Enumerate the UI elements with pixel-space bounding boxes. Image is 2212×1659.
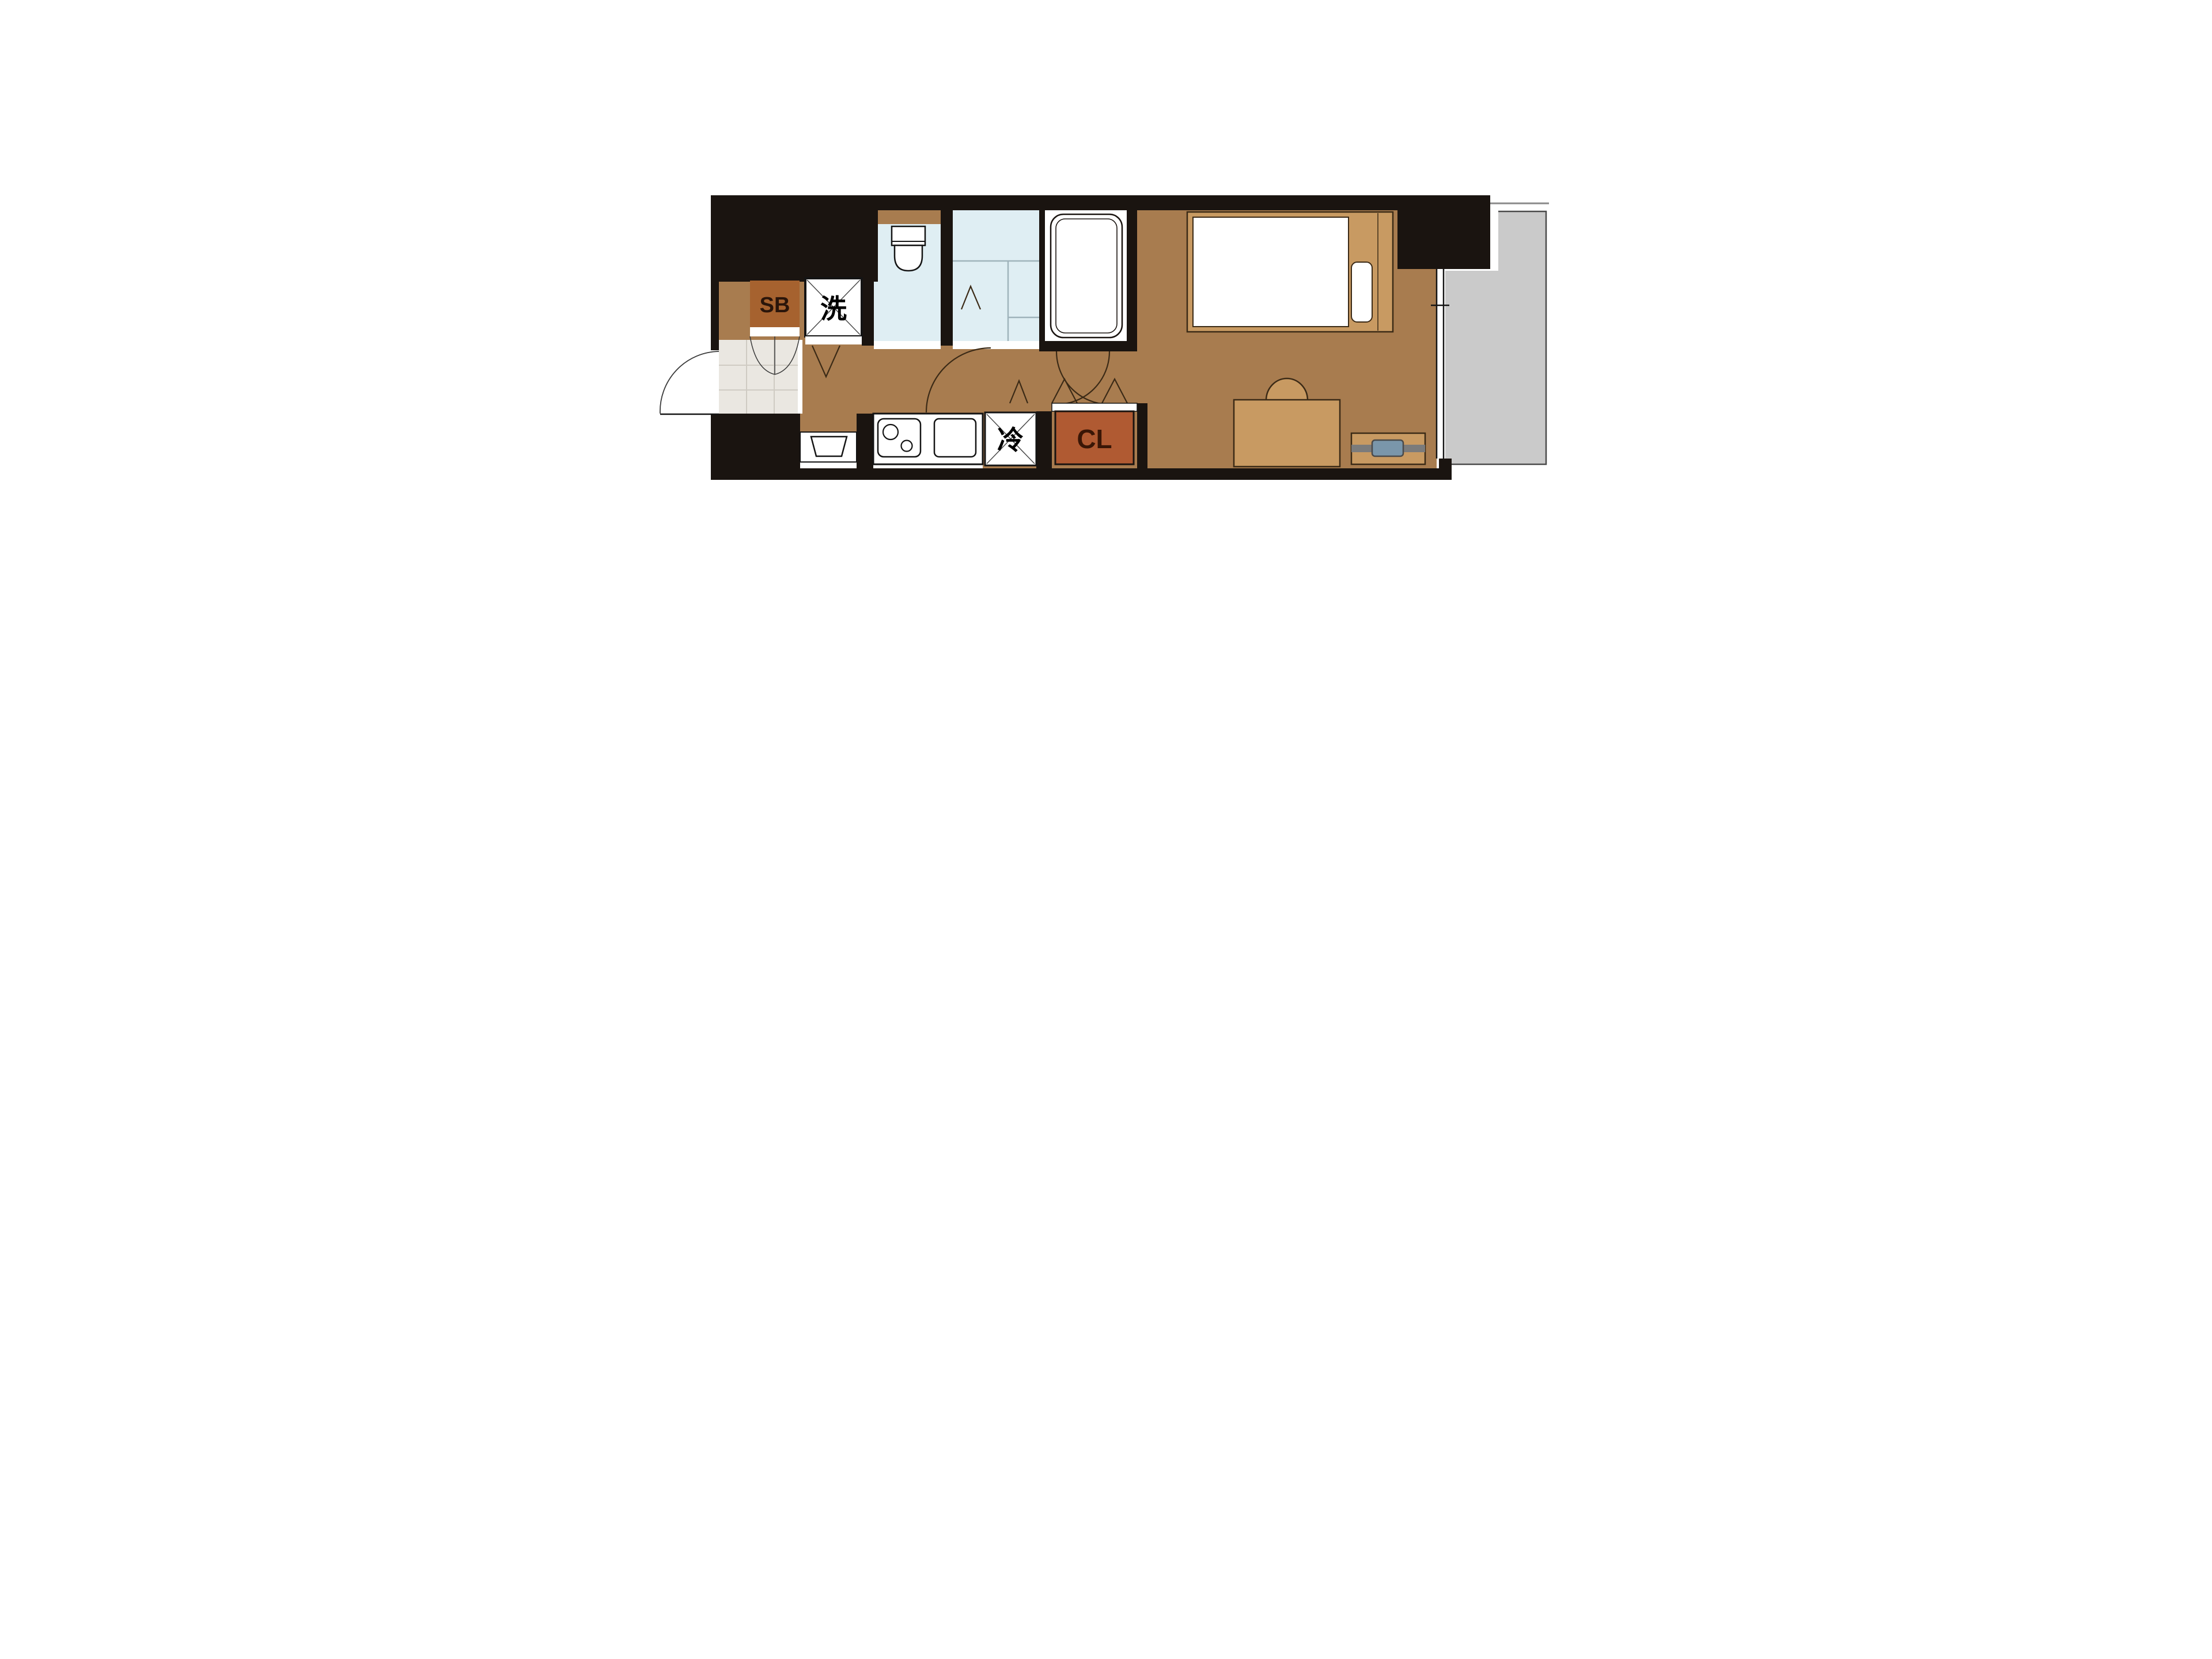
desk (1234, 400, 1340, 467)
entrance-door-swing-arc (660, 351, 719, 414)
wall-washer-toilet (862, 210, 874, 346)
wall-closet-right (1137, 403, 1147, 468)
toilet-bowl (895, 245, 922, 271)
pillow (1351, 262, 1372, 322)
wash-basin-base (800, 462, 857, 468)
wash-basin (811, 437, 847, 456)
tv (1372, 440, 1403, 456)
washer-threshold (805, 336, 862, 344)
shoe-box-label: SB (760, 293, 790, 317)
bed (1187, 212, 1393, 332)
toilet-door-threshold (874, 341, 941, 349)
two-burner-stove (878, 419, 921, 457)
wall-fridge-right (1036, 411, 1052, 468)
wall-bath-bottom (1039, 341, 1137, 351)
wall-toilet-washroom (941, 210, 953, 346)
entrance-door (660, 351, 719, 414)
toilet (892, 226, 925, 271)
wall-bath-right (1127, 210, 1137, 341)
shoe-box: SB (750, 281, 800, 374)
wall-left-upper (711, 210, 719, 350)
kitchen-sink (934, 419, 976, 457)
washroom-floor (953, 210, 1039, 341)
wall-washroom-bath (1039, 210, 1045, 341)
tv-board (1351, 433, 1425, 464)
floor-plan-drawing: SB 洗 CL (654, 0, 1558, 677)
wall-kitchen-left-stub (857, 414, 873, 468)
washroom-door-threshold (953, 341, 1039, 349)
entrance-step (798, 340, 802, 414)
mattress (1193, 217, 1349, 327)
wall-top (711, 195, 1490, 210)
washer-label: 洗 (820, 294, 847, 324)
closet-door-track (1052, 403, 1137, 411)
bathtub (1051, 214, 1122, 338)
window-glass (1437, 269, 1444, 459)
wall-pillar-top-right (1397, 210, 1490, 269)
refrigerator: 冷 (985, 412, 1036, 465)
closet-label: CL (1077, 424, 1112, 454)
toilet-tank (892, 226, 925, 245)
wall-top-left-block (711, 210, 878, 282)
shoe-box-track (750, 327, 800, 336)
wall-stub-bottom-right (1439, 459, 1452, 480)
bathtub-outer (1051, 214, 1122, 338)
fridge-label: 冷 (997, 425, 1024, 455)
wall-bottom (711, 468, 1452, 480)
entrance-floor (719, 340, 800, 414)
floor-plan-page: SB 洗 CL (654, 0, 1558, 677)
